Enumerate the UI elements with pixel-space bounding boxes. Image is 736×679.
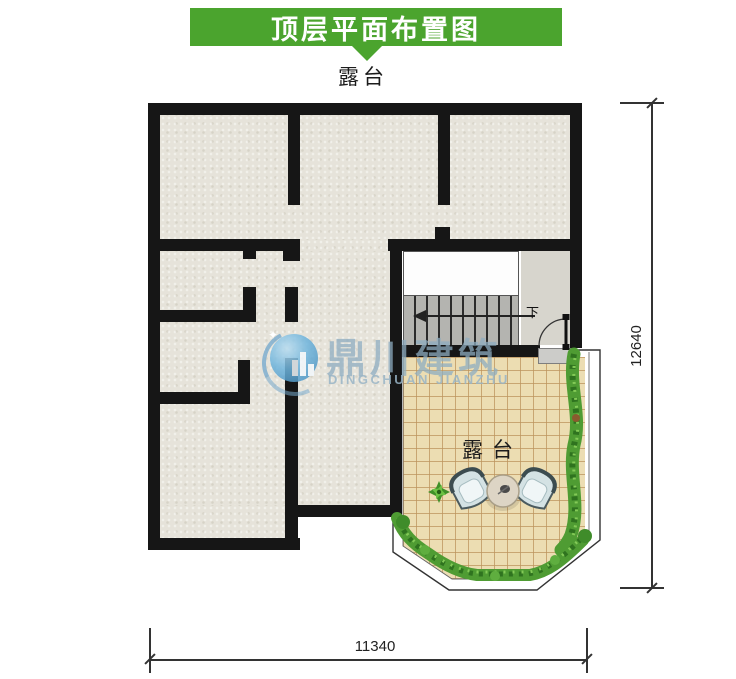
- dim-extension: [149, 628, 151, 673]
- dim-bottom-label: 11340: [338, 638, 412, 655]
- floor-area: [160, 115, 570, 239]
- round-table-icon: [487, 475, 519, 507]
- stair-arrow: [425, 315, 535, 317]
- floor-area: [160, 251, 390, 505]
- stair-tread: [498, 296, 500, 345]
- wall: [160, 239, 300, 251]
- wall: [243, 287, 256, 322]
- stair-arrow-head-icon: [413, 310, 426, 322]
- dim-extension: [620, 102, 664, 104]
- dim-line: [150, 659, 588, 661]
- stair-tread: [510, 296, 512, 345]
- wall: [238, 360, 250, 404]
- dim-extension: [620, 587, 664, 589]
- wall: [388, 239, 570, 251]
- wall: [160, 392, 250, 404]
- stair-tread: [486, 296, 488, 345]
- dim-line: [651, 103, 653, 589]
- title-banner: 顶层平面布置图: [190, 8, 562, 46]
- stair-tread: [450, 296, 452, 345]
- dim-right-label: 12640: [628, 315, 644, 377]
- wall: [148, 538, 300, 550]
- terrace-decor: [385, 340, 615, 605]
- stair-tread: [438, 296, 440, 345]
- wall: [148, 103, 582, 115]
- terrace-top-label: 露台: [338, 61, 458, 91]
- stair-tread: [426, 296, 428, 345]
- wall: [438, 115, 450, 205]
- floor-plan-page: 顶层平面布置图 露台: [0, 0, 736, 679]
- wall: [148, 103, 160, 550]
- wall: [285, 358, 298, 550]
- plant-border: [396, 354, 592, 581]
- page-title: 顶层平面布置图: [271, 8, 481, 47]
- dim-extension: [586, 628, 588, 673]
- wall: [283, 251, 300, 261]
- wall: [160, 310, 243, 322]
- wall: [243, 251, 256, 259]
- wall: [435, 227, 450, 239]
- wall: [288, 115, 300, 205]
- floor-area: [300, 239, 388, 251]
- stair-tread: [462, 296, 464, 345]
- potted-plant-icon: [428, 481, 450, 503]
- floor-area: [160, 505, 298, 538]
- terrace-label: 露台: [462, 434, 522, 464]
- stair-tread: [474, 296, 476, 345]
- stair-void: [403, 251, 519, 296]
- wall: [285, 287, 298, 322]
- banner-notch: [352, 46, 382, 61]
